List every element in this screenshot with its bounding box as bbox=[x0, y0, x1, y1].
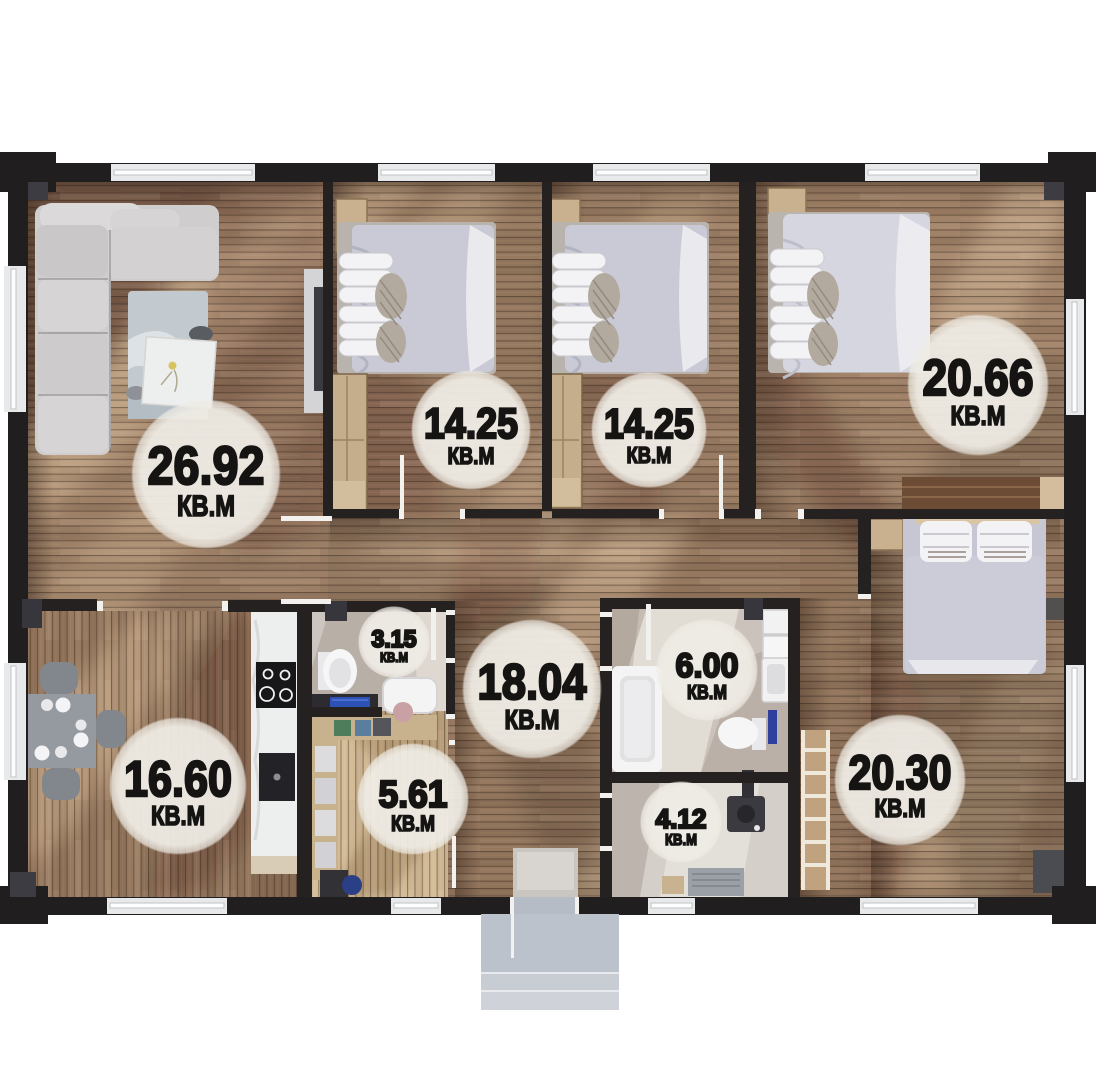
svg-text:18.04: 18.04 bbox=[478, 654, 587, 710]
svg-text:КВ.М: КВ.М bbox=[391, 811, 435, 836]
svg-text:16.60: 16.60 bbox=[124, 751, 232, 807]
svg-text:КВ.М: КВ.М bbox=[448, 443, 495, 470]
svg-text:6.00: 6.00 bbox=[676, 647, 739, 685]
svg-text:КВ.М: КВ.М bbox=[875, 793, 926, 823]
svg-text:26.92: 26.92 bbox=[148, 436, 265, 496]
svg-text:КВ.М: КВ.М bbox=[665, 832, 697, 849]
svg-text:4.12: 4.12 bbox=[656, 804, 707, 834]
svg-text:КВ.М: КВ.М bbox=[951, 400, 1006, 431]
svg-text:КВ.М: КВ.М bbox=[177, 490, 235, 523]
svg-text:14.25: 14.25 bbox=[424, 400, 518, 448]
svg-text:КВ.М: КВ.М bbox=[627, 442, 672, 468]
svg-text:КВ.М: КВ.М bbox=[380, 649, 408, 665]
svg-text:КВ.М: КВ.М bbox=[151, 800, 205, 831]
svg-text:5.61: 5.61 bbox=[379, 774, 448, 816]
svg-text:20.66: 20.66 bbox=[923, 349, 1034, 406]
svg-text:14.25: 14.25 bbox=[604, 400, 694, 447]
svg-text:КВ.М: КВ.М bbox=[687, 682, 727, 704]
svg-text:КВ.М: КВ.М bbox=[505, 704, 560, 735]
